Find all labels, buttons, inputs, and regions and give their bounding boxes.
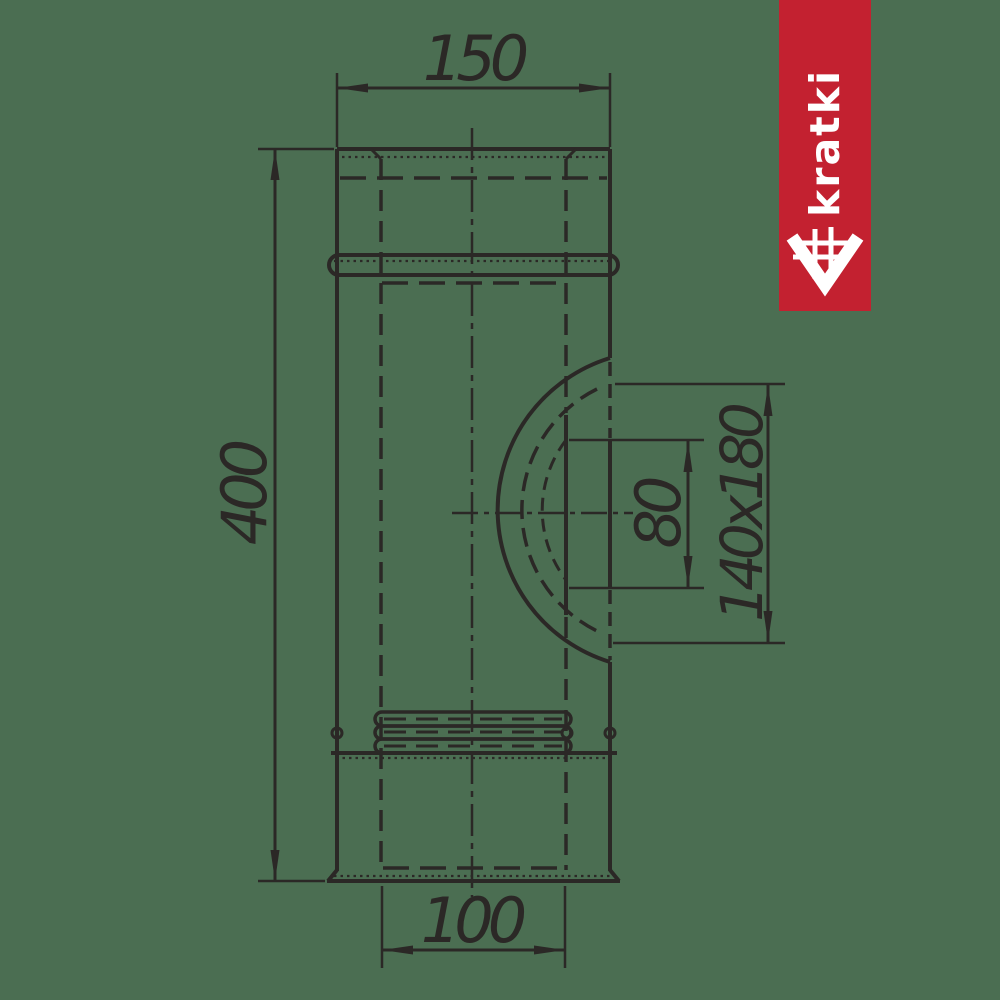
arrow-down [684, 556, 693, 587]
dimension-400: 400 [208, 149, 334, 881]
arrow-left [382, 946, 413, 955]
outlet-arc-middle [522, 389, 597, 631]
arrow-left [337, 84, 368, 93]
arrow-up [271, 149, 280, 180]
arrow-up [684, 441, 693, 472]
pipe-outline [327, 149, 620, 881]
side-outlet [498, 358, 610, 662]
arrow-down [271, 850, 280, 881]
arrow-right [534, 946, 565, 955]
dimension-100: 100 [382, 884, 565, 968]
crimp-rings [332, 712, 615, 753]
center-lines [452, 128, 633, 897]
dimension-150-label: 150 [423, 22, 527, 95]
arrow-right [579, 84, 610, 93]
kratki-banner: kratki [779, 0, 871, 311]
socket-bead-ring [329, 255, 618, 275]
dimension-80-label: 80 [622, 478, 695, 548]
outlet-arc-inner [542, 440, 566, 580]
dimension-150: 150 [337, 22, 610, 147]
dimension-400-label: 400 [208, 441, 281, 545]
dimension-100-label: 100 [421, 884, 525, 957]
kratki-banner-content: kratki [779, 0, 871, 311]
brand-text: kratki [805, 69, 846, 217]
grate-chevron-icon [785, 227, 865, 297]
outlet-arc-outer [498, 358, 610, 662]
dimension-140x180-label: 140x180 [708, 405, 776, 622]
